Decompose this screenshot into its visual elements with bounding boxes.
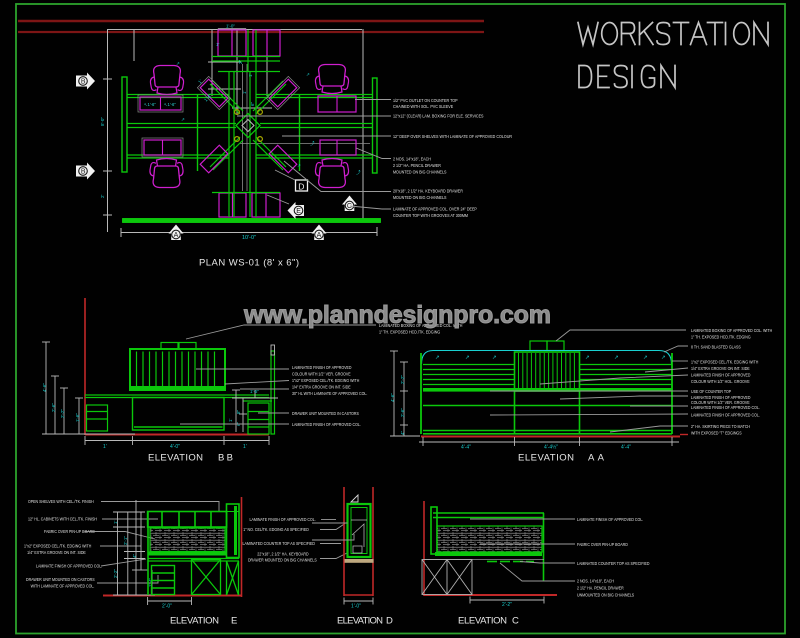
svg-text:2 NOS. 14"x18", EACH: 2 NOS. 14"x18", EACH <box>393 156 431 162</box>
svg-text:LAMINATED FINISH OF APPROVED: LAMINATED FINISH OF APPROVED <box>292 365 352 371</box>
svg-text:1': 1' <box>113 520 118 524</box>
svg-text:COLOUR WITH 1/2" HOL. GROOVE: COLOUR WITH 1/2" HOL. GROOVE <box>691 379 750 385</box>
svg-text:1" NO. CEL/TK. EDGING AS SPECI: 1" NO. CEL/TK. EDGING AS SPECIFIED <box>243 527 309 533</box>
svg-text:LAMINATED FINISH OF APPROVED C: LAMINATED FINISH OF APPROVED COL. <box>292 422 361 428</box>
svg-text:10'-0": 10'-0" <box>242 235 256 241</box>
svg-text:20"x18", 2 1/2" HA. KEYBOARD D: 20"x18", 2 1/2" HA. KEYBOARD DRAWER <box>393 188 463 194</box>
svg-text:↖1'-6": ↖1'-6" <box>164 102 176 107</box>
svg-text:LAMINATED COUNTER TOP AS SPECI: LAMINATED COUNTER TOP AS SPECIFIED <box>242 541 314 547</box>
svg-text:LAMINATE FINISH OF APPROVED CO: LAMINATE FINISH OF APPROVED COL. <box>577 517 643 523</box>
svg-text:E: E <box>231 616 237 627</box>
svg-text:22"x18", 2 1/2" HA. KEYBOARD: 22"x18", 2 1/2" HA. KEYBOARD <box>257 551 308 557</box>
svg-text:MOUNTED ON BIG CHANNELS: MOUNTED ON BIG CHANNELS <box>393 169 447 175</box>
svg-text:1/4" EXTRA GROOVE ON INT. SIDE: 1/4" EXTRA GROOVE ON INT. SIDE <box>27 550 86 556</box>
svg-text:↖1'-6": ↖1'-6" <box>144 102 156 107</box>
svg-text:4'-4½": 4'-4½" <box>544 444 558 451</box>
svg-text:1'-0": 1'-0" <box>226 24 235 29</box>
svg-text:2'-6": 2'-6" <box>51 403 56 412</box>
svg-text:2'-2": 2'-2" <box>502 602 512 608</box>
svg-text:8 TH. SAND BLASTED GLASS: 8 TH. SAND BLASTED GLASS <box>691 344 741 350</box>
svg-text:↗: ↗ <box>643 355 648 361</box>
svg-text:1': 1' <box>103 444 107 450</box>
svg-text:↗: ↗ <box>465 355 470 361</box>
svg-text:↗: ↗ <box>614 355 619 361</box>
svg-text:1/2" PVC OUTLET ON COUNTER TOP: 1/2" PVC OUTLET ON COUNTER TOP <box>393 98 458 104</box>
svg-text:30" HL WITH LAMINATE OF APPROV: 30" HL WITH LAMINATE OF APPROVED COL. <box>292 391 367 397</box>
svg-text:12" HL. CABINETS WITH CEL./TK.: 12" HL. CABINETS WITH CEL./TK. FINISH <box>28 516 97 522</box>
svg-text:ELEVATION: ELEVATION <box>458 616 508 627</box>
svg-text:1'-6": 1'-6" <box>250 389 259 394</box>
svg-text:COLOUR WITH 1/2" VER. GROOVE: COLOUR WITH 1/2" VER. GROOVE <box>292 371 351 377</box>
svg-text:2'-2": 2'-2" <box>400 375 405 384</box>
svg-text:C: C <box>512 616 519 627</box>
svg-text:↗: ↗ <box>176 61 180 66</box>
svg-text:4": 4" <box>400 430 405 435</box>
svg-text:1" TH. EXPOSED HCD./TK. EDGING: 1" TH. EXPOSED HCD./TK. EDGING <box>379 329 440 335</box>
svg-text:ELEVATION: ELEVATION <box>170 616 220 627</box>
svg-text:USE OF COUNTER TOP: USE OF COUNTER TOP <box>691 389 731 395</box>
svg-text:OPEN SHELVES WITH CEL./TK. FIN: OPEN SHELVES WITH CEL./TK. FINISH <box>28 499 94 505</box>
svg-text:2'-2": 2'-2" <box>60 409 65 418</box>
svg-text:E: E <box>296 208 301 215</box>
svg-text:1'-0": 1'-0" <box>351 604 361 610</box>
svg-text:4'-4": 4'-4" <box>621 445 631 451</box>
svg-text:↗: ↗ <box>181 117 185 122</box>
svg-text:12" DEEP OVER SHELVES WITH LAM: 12" DEEP OVER SHELVES WITH LAMINATE OF A… <box>393 134 512 140</box>
svg-text:1" TH. EXPOSED HCD./TK. EDGING: 1" TH. EXPOSED HCD./TK. EDGING <box>691 334 751 340</box>
svg-text:4'-0": 4'-0" <box>170 444 180 450</box>
svg-text:2 NOS. 14"x18", EACH: 2 NOS. 14"x18", EACH <box>577 578 614 584</box>
svg-text:2'-1": 2'-1" <box>123 536 128 545</box>
svg-text:8'-0": 8'-0" <box>100 117 105 126</box>
svg-text:2 1/2" HA. PENCIL DRAWER: 2 1/2" HA. PENCIL DRAWER <box>393 163 441 169</box>
svg-text:12"x12" (CLEAR) LAM. BOXING FO: 12"x12" (CLEAR) LAM. BOXING FOR ELE. SER… <box>393 113 484 119</box>
svg-text:1/4" EXTRA GROOVE ON INT. SIDE: 1/4" EXTRA GROOVE ON INT. SIDE <box>691 366 750 372</box>
svg-text:LAMINATED FINISH OF APPROVED C: LAMINATED FINISH OF APPROVED COL. <box>691 405 760 411</box>
svg-text:4'-6": 4'-6" <box>42 383 47 392</box>
svg-text:C: C <box>347 203 352 210</box>
svg-text:CHAINED WITH SOL. PVC SLEEVE: CHAINED WITH SOL. PVC SLEEVE <box>393 104 453 110</box>
svg-text:1"x2" EXPOSED CEL./TK. EDGING: 1"x2" EXPOSED CEL./TK. EDGING WITH <box>24 543 91 549</box>
svg-text:DRAWER MOUNTED ON BIG CHANNELS: DRAWER MOUNTED ON BIG CHANNELS <box>248 557 317 563</box>
svg-text:www.planndesignpro.com: www.planndesignpro.com <box>243 301 551 329</box>
svg-text:1': 1' <box>216 42 220 47</box>
svg-text:2": 2" <box>238 59 243 64</box>
svg-text:D: D <box>298 181 304 191</box>
svg-text:2'-2": 2'-2" <box>113 569 118 578</box>
svg-text:1': 1' <box>228 418 233 422</box>
svg-text:2 1/2" HA. PENCIL DRAWER: 2 1/2" HA. PENCIL DRAWER <box>577 585 624 591</box>
svg-text:1': 1' <box>248 73 253 77</box>
svg-text:↗: ↗ <box>297 163 301 168</box>
svg-text:4": 4" <box>132 553 137 558</box>
svg-text:WITH LAMINATE OF APPROVED COL.: WITH LAMINATE OF APPROVED COL. <box>31 583 95 589</box>
svg-text:LAMINATED BOXING OF APPROVED C: LAMINATED BOXING OF APPROVED COL. WITH <box>691 328 772 334</box>
svg-text:LAMINATE OF APPROVED COL. OVER: LAMINATE OF APPROVED COL. OVER 24" DEEP <box>393 206 477 212</box>
svg-text:6": 6" <box>250 101 255 106</box>
svg-text:DRAWER UNIT MOUNTED ON CASTORS: DRAWER UNIT MOUNTED ON CASTORS <box>26 577 95 583</box>
svg-text:1': 1' <box>242 90 247 94</box>
svg-text:D: D <box>386 616 393 627</box>
svg-text:⤴: ⤴ <box>310 140 315 146</box>
svg-text:MOUNTED ON BIG CHANNELS: MOUNTED ON BIG CHANNELS <box>393 195 447 201</box>
svg-text:WITH EXPOSED "T" EDGINGS: WITH EXPOSED "T" EDGINGS <box>691 430 742 436</box>
svg-text:LAMINATED FINISH OF APPROVED: LAMINATED FINISH OF APPROVED <box>691 372 751 378</box>
svg-text:LAMINATED FINISH OF APPROVED C: LAMINATED FINISH OF APPROVED COL. <box>691 412 760 418</box>
svg-text:LAMINATED COUNTER TOP AS SPECI: LAMINATED COUNTER TOP AS SPECIFIED <box>577 561 649 567</box>
svg-text:8": 8" <box>236 409 241 414</box>
svg-text:2': 2' <box>100 194 105 198</box>
svg-text:1'-6": 1'-6" <box>75 413 80 422</box>
svg-text:UNMOUNTED ON BIG CHANNELS: UNMOUNTED ON BIG CHANNELS <box>577 592 634 598</box>
svg-text:↗: ↗ <box>435 355 440 361</box>
svg-text:4'-4": 4'-4" <box>461 445 471 451</box>
svg-text:ELEVATION: ELEVATION <box>518 453 575 464</box>
svg-text:LAMINATE FINISH OF APPROVED CO: LAMINATE FINISH OF APPROVED COL. <box>36 563 102 569</box>
svg-text:DRAWER UNIT MOUNTED IN CASTORS: DRAWER UNIT MOUNTED IN CASTORS <box>292 411 359 417</box>
svg-text:COUNTER TOP WITH GROOVES AT 30: COUNTER TOP WITH GROOVES AT 300MM <box>393 213 468 219</box>
svg-text:1/4" EXTRA GROOVE ON INT. SIDE: 1/4" EXTRA GROOVE ON INT. SIDE <box>292 384 351 390</box>
svg-text:↗: ↗ <box>661 355 666 361</box>
svg-text:LAMINATE FINISH OF APPROVED CO: LAMINATE FINISH OF APPROVED COL. <box>250 517 316 523</box>
svg-text:ELEVATION: ELEVATION <box>148 453 204 464</box>
svg-text:2" HA. SKIRTING PIECE TO MATCH: 2" HA. SKIRTING PIECE TO MATCH <box>691 424 750 430</box>
svg-text:4'-6": 4'-6" <box>390 393 395 402</box>
svg-text:FABRIC OVER PIN-UP BOARD: FABRIC OVER PIN-UP BOARD <box>577 542 628 548</box>
svg-text:PLAN WS-01 (8' x 6"): PLAN WS-01 (8' x 6") <box>199 258 299 269</box>
svg-text:2'-6": 2'-6" <box>400 408 405 417</box>
svg-text:⤴: ⤴ <box>356 169 361 175</box>
svg-text:1"x2" EXPOSED CEL./TK. EDGING: 1"x2" EXPOSED CEL./TK. EDGING WITH <box>691 359 758 365</box>
svg-text:↗: ↗ <box>306 72 310 77</box>
svg-text:↗: ↗ <box>585 355 590 361</box>
svg-text:ELEVATION: ELEVATION <box>337 616 383 627</box>
svg-text:1"x2" EXPOSED CEL./TK. EDGING: 1"x2" EXPOSED CEL./TK. EDGING WITH <box>292 378 359 384</box>
svg-text:2'-0": 2'-0" <box>162 604 172 610</box>
svg-text:↗: ↗ <box>492 355 497 361</box>
svg-text:1': 1' <box>243 444 247 450</box>
